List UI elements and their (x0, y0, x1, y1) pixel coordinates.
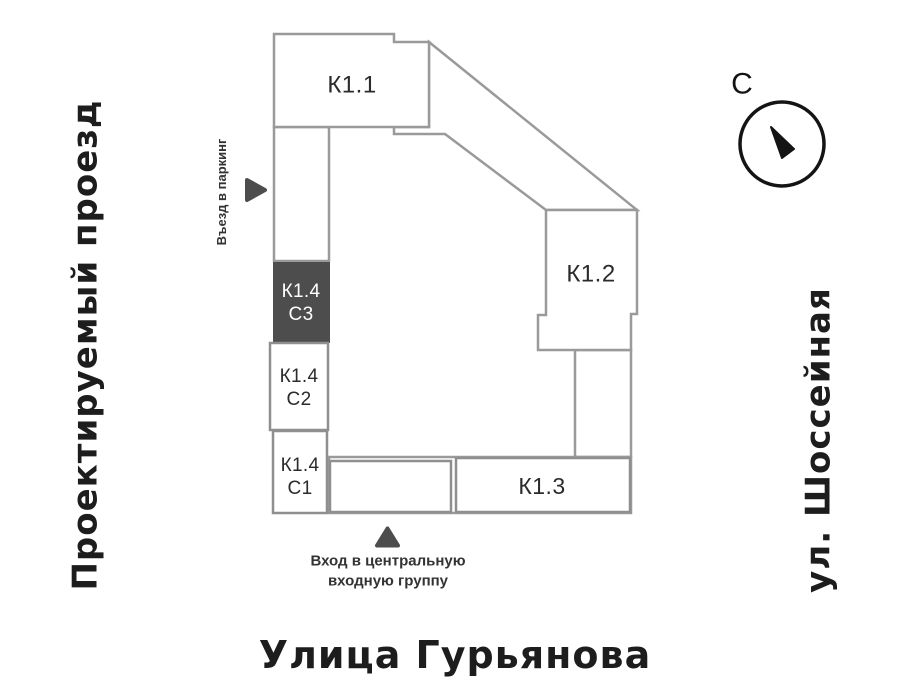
building-k12-label: К1.2 (566, 259, 615, 288)
street-label-right: ул. Шоссейная (798, 287, 839, 593)
parking-entry-arrow-icon (247, 180, 265, 200)
street-label-bottom: Улица Гурьянова (259, 632, 651, 678)
building-diagonal-wing-shape (394, 42, 637, 210)
parking-entry-note: Въезд в паркинг (214, 139, 230, 246)
street-label-left: Проектируемый проезд (65, 99, 106, 590)
compass-north-label: С (731, 67, 753, 104)
site-plan-canvas (0, 0, 900, 700)
building-right-corridor-shape (575, 350, 631, 457)
site-plan: К1.1 К1.2 К1.3 К1.4 С3 К1.4 С2 К1.4 С1 В… (0, 0, 900, 700)
building-k13-label: К1.3 (518, 472, 565, 500)
building-k14-c1-label: К1.4 С1 (281, 454, 320, 500)
building-bottom-wing-section-shape (330, 461, 451, 512)
central-entrance-arrow-icon (377, 529, 398, 546)
central-entrance-note: Вход в центральную входную группу (310, 552, 465, 591)
building-k14-c3-label: К1.4 С3 (282, 280, 321, 326)
building-left-column-shape (274, 127, 329, 261)
building-k14-c2-label: К1.4 С2 (280, 365, 319, 411)
compass-needle-icon (771, 127, 794, 158)
building-k11-label: К1.1 (327, 70, 376, 99)
